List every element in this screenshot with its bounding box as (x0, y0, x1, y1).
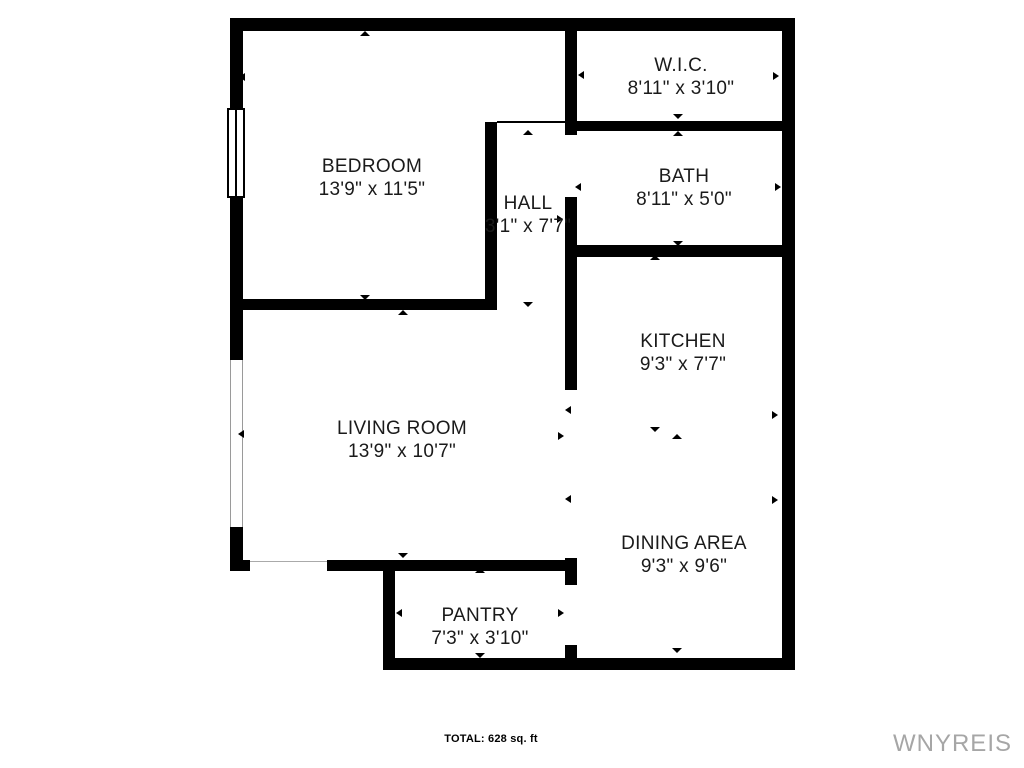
dimension-arrow-icon (650, 427, 660, 432)
dimension-arrow-icon (772, 496, 778, 504)
dimension-arrow-icon (773, 72, 779, 80)
room-dimensions: 8'11" x 3'10" (628, 77, 735, 100)
watermark-logo: WNYREIS (893, 730, 1012, 758)
room-label-bedroom: BEDROOM 13'9" x 11'5" (319, 155, 426, 201)
dimension-arrow-icon (360, 31, 370, 36)
dimension-arrow-icon (360, 295, 370, 300)
wall-right (782, 18, 795, 670)
wall-wic-bath-divider (571, 121, 782, 131)
dimension-arrow-icon (565, 406, 571, 414)
dimension-arrow-icon (575, 183, 581, 191)
wall-living-bottom (327, 560, 575, 571)
room-dimensions: 7'3" x 3'10" (431, 627, 528, 650)
room-label-wic: W.I.C. 8'11" x 3'10" (628, 54, 735, 100)
bedroom-window-icon (227, 108, 245, 198)
dimension-arrow-icon (775, 183, 781, 191)
dimension-arrow-icon (650, 255, 660, 260)
room-label-living-room: LIVING ROOM 13'9" x 10'7" (337, 417, 467, 463)
living-room-window-icon (230, 360, 243, 527)
wall-top (230, 18, 795, 31)
wall-bath-kitchen-divider (565, 245, 782, 257)
room-label-kitchen: KITCHEN 9'3" x 7'7" (640, 330, 726, 376)
room-dimensions: 3'1" x 7'7" (485, 215, 571, 238)
dimension-arrow-icon (238, 430, 244, 438)
living-room-opening-line (250, 561, 327, 562)
room-name: BATH (636, 165, 732, 188)
dimension-arrow-icon (558, 609, 564, 617)
room-dimensions: 13'9" x 10'7" (337, 440, 467, 463)
dimension-arrow-icon (523, 130, 533, 135)
wall-bottom (383, 658, 795, 670)
dimension-arrow-icon (673, 131, 683, 136)
room-dimensions: 8'11" x 5'0" (636, 188, 732, 211)
room-label-pantry: PANTRY 7'3" x 3'10" (431, 604, 528, 650)
dimension-arrow-icon (398, 553, 408, 558)
dimension-arrow-icon (396, 609, 402, 617)
dimension-arrow-icon (772, 411, 778, 419)
room-dimensions: 9'3" x 9'6" (621, 555, 747, 578)
room-name: DINING AREA (621, 532, 747, 555)
dimension-arrow-icon (239, 73, 245, 81)
room-dimensions: 13'9" x 11'5" (319, 178, 426, 201)
room-name: PANTRY (431, 604, 528, 627)
dimension-arrow-icon (673, 241, 683, 246)
room-name: LIVING ROOM (337, 417, 467, 440)
total-area-label: TOTAL: 628 sq. ft (444, 733, 537, 745)
wall-left-upper (230, 18, 243, 110)
dimension-arrow-icon (673, 114, 683, 119)
dimension-arrow-icon (558, 432, 564, 440)
wall-pantry-left (383, 560, 395, 670)
dimension-arrow-icon (523, 302, 533, 307)
room-name: W.I.C. (628, 54, 735, 77)
room-label-hall: HALL 3'1" x 7'7" (485, 192, 571, 238)
wall-pantry-right-upper (565, 558, 577, 585)
wall-living-bottom-corner (230, 560, 250, 571)
room-dimensions: 9'3" x 7'7" (640, 353, 726, 376)
dimension-arrow-icon (578, 71, 584, 79)
dimension-arrow-icon (672, 648, 682, 653)
wall-left-middle (230, 196, 243, 360)
dimension-arrow-icon (475, 568, 485, 573)
room-name: HALL (485, 192, 571, 215)
dimension-arrow-icon (475, 653, 485, 658)
wall-center-upper (565, 18, 577, 135)
dimension-arrow-icon (672, 434, 682, 439)
room-label-dining-area: DINING AREA 9'3" x 9'6" (621, 532, 747, 578)
room-name: KITCHEN (640, 330, 726, 353)
floor-plan-canvas: BEDROOM 13'9" x 11'5" W.I.C. 8'11" x 3'1… (0, 0, 1024, 768)
dimension-arrow-icon (398, 310, 408, 315)
room-label-bath: BATH 8'11" x 5'0" (636, 165, 732, 211)
hall-opening-line (497, 121, 565, 123)
wall-bedroom-bottom (230, 299, 497, 310)
wall-pantry-right-lower (565, 645, 577, 670)
room-name: BEDROOM (319, 155, 426, 178)
dimension-arrow-icon (565, 495, 571, 503)
